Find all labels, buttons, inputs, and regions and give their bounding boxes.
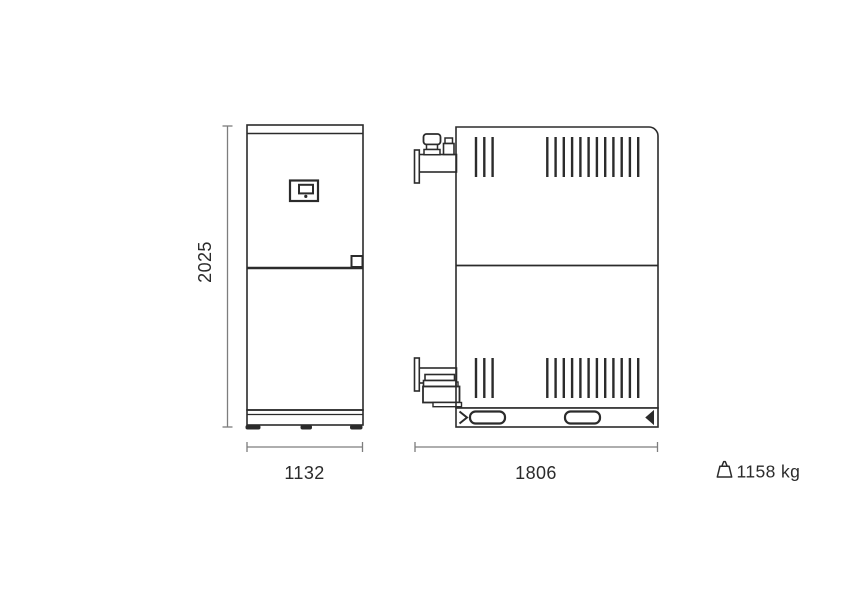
front-width-dimension-label: 1132 (284, 463, 324, 483)
pump-plate-upper (425, 375, 455, 381)
side-width-dimension-label: 1806 (515, 463, 557, 483)
fitting-cap (445, 138, 453, 144)
valve-neck (427, 145, 438, 150)
vents-bottom-right-icon (547, 358, 638, 398)
dimension-height: 2025 (195, 126, 233, 427)
door-latch (352, 256, 363, 267)
weight-icon-body (717, 466, 731, 477)
foot-left (246, 425, 261, 430)
base-rail-slot-left (470, 412, 505, 424)
top-pipe (419, 155, 457, 173)
base-rail-slot-right (565, 412, 600, 424)
vents-top-left-icon (476, 137, 493, 177)
weight-value-label: 1158 kg (737, 462, 801, 482)
foot-right (350, 425, 363, 430)
bottom-pipe-flange (415, 358, 420, 391)
vents-top-right-icon (547, 137, 638, 177)
vents-bottom-left-icon (476, 358, 493, 398)
top-pipe-connection (415, 134, 457, 183)
pump-body (423, 387, 460, 403)
dimension-diagram: 2025 1132 1806 1158 kg (0, 0, 860, 600)
control-panel-button (304, 195, 307, 198)
foot-center (301, 425, 313, 430)
front-view (246, 125, 364, 430)
diagram-svg: 2025 1132 1806 1158 kg (0, 0, 860, 600)
pump-foot (433, 403, 462, 407)
valve-cap (424, 134, 441, 145)
front-base (247, 410, 363, 425)
weight-icon (717, 462, 731, 477)
height-dimension-label: 2025 (195, 241, 215, 283)
dimension-side-width: 1806 (415, 442, 658, 483)
dimension-front-width: 1132 (247, 442, 363, 483)
bottom-pipe-connection (415, 358, 462, 407)
weight-annotation: 1158 kg (717, 462, 800, 482)
side-body (456, 127, 658, 408)
dimension-lines: 2025 1132 1806 (195, 126, 658, 483)
top-pipe-flange (415, 150, 420, 183)
control-panel-screen (299, 185, 313, 194)
side-view (415, 127, 659, 427)
valve-base (424, 150, 440, 155)
fitting-body (444, 144, 455, 155)
